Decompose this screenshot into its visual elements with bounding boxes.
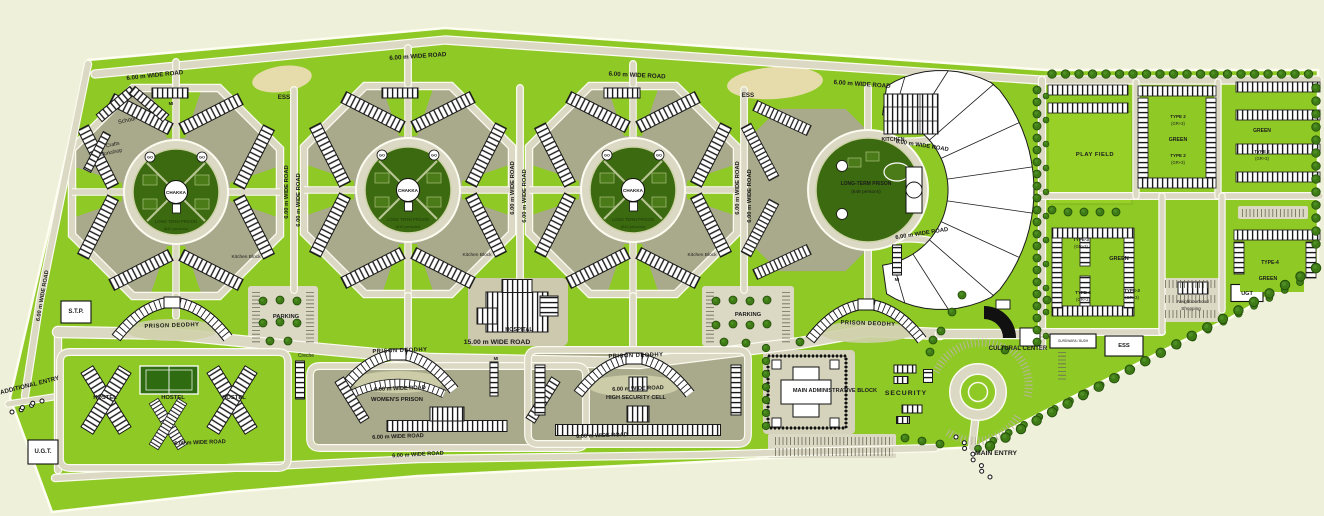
watch-tower <box>837 161 848 172</box>
tree-icon <box>1172 340 1182 350</box>
hs-tower <box>731 365 741 415</box>
tree-icon <box>1218 314 1228 324</box>
mi-building <box>490 362 498 396</box>
type2-label-1b: (GR+3) <box>1171 121 1185 126</box>
tree-icon <box>1312 162 1321 171</box>
tree-icon <box>1312 240 1321 249</box>
tree-icon <box>1001 433 1011 443</box>
tree-icon <box>1250 70 1259 79</box>
admin-block-label: MAIN ADMINISTRATIVE BLOCK <box>793 388 877 394</box>
tree-icon <box>1048 70 1057 79</box>
tree-icon <box>1033 122 1041 130</box>
hs-gate <box>627 406 649 422</box>
tree-icon <box>1080 208 1088 216</box>
tree-icon <box>1033 242 1041 250</box>
housing-green <box>1090 240 1124 306</box>
central-tower <box>906 182 922 198</box>
tree-icon <box>762 357 770 365</box>
tree-icon <box>1312 136 1321 145</box>
additional-entry-gate <box>40 399 44 403</box>
main-entry-gate <box>979 464 983 468</box>
hostel-label-3: HOSTEL <box>222 395 246 401</box>
tree-icon <box>1033 86 1041 94</box>
green-label-1: GREEN <box>1169 137 1188 143</box>
housing-row <box>1234 242 1244 274</box>
housing-row <box>1052 306 1134 316</box>
hospital-wing <box>540 296 558 316</box>
tree-icon <box>1115 70 1124 79</box>
hospital-wing <box>477 308 497 324</box>
tree-icon <box>1033 182 1041 190</box>
road-label-main: 15.00 m WIDE ROAD <box>464 339 531 346</box>
mi-building <box>152 88 188 98</box>
housing-row <box>1080 238 1090 266</box>
tree-icon <box>1033 338 1041 346</box>
tree-icon <box>259 297 267 305</box>
tree-icon <box>1096 208 1104 216</box>
tree-icon <box>1033 110 1041 118</box>
road-label-vertical-3: 6.00 m WIDE ROAD <box>510 161 516 214</box>
cultural-center-label: CULTURAL CENTER <box>989 346 1048 352</box>
tree-icon <box>1129 70 1138 79</box>
tree-icon <box>1312 97 1321 106</box>
type2-label-3a: TYPE 2 <box>1254 149 1270 154</box>
tree-icon <box>1033 206 1041 214</box>
tree-icon <box>1033 98 1041 106</box>
tree-icon <box>1304 70 1313 79</box>
tree-icon <box>1169 70 1178 79</box>
tree-icon <box>1048 206 1056 214</box>
ess-label-3: ESS <box>1118 343 1130 349</box>
play-field <box>1048 112 1132 204</box>
security-building <box>894 365 916 373</box>
type3-label-3b: (GR+3) <box>1125 295 1139 300</box>
tree-icon <box>929 336 937 344</box>
ess-label-2: ESS <box>742 92 754 99</box>
tree-icon <box>1088 70 1097 79</box>
green-label-3: GREEN <box>1109 256 1129 262</box>
site-plan-page: GO GO CHAKKA LONG TERM PRISON (640 perso… <box>0 0 1324 516</box>
tree-icon <box>762 396 770 404</box>
security-building <box>924 370 933 383</box>
tree-icon <box>762 383 770 391</box>
tree-icon <box>1063 399 1073 409</box>
kitchen-building <box>884 94 938 134</box>
tree-icon <box>1033 134 1041 142</box>
main-entry-gate <box>963 446 967 450</box>
type4-label: TYPE-4 <box>1261 260 1279 266</box>
tree-icon <box>1043 165 1049 171</box>
creche-building <box>296 361 305 399</box>
hostel-label-2: HOSTEL <box>161 395 185 401</box>
type2-label-2a: TYPE 2 <box>1170 153 1186 158</box>
main-entry-gate <box>988 475 992 479</box>
housing-row <box>1236 110 1320 120</box>
type3-label-2a: TYPE-3 <box>1075 290 1091 295</box>
admin-corner-tower <box>830 360 839 369</box>
road-label-vertical-5: 6.00 m WIDE ROAD <box>735 161 741 214</box>
housing-row <box>1052 228 1134 238</box>
tree-icon <box>936 440 944 448</box>
stp-label: S.T.P. <box>68 309 84 315</box>
tree-icon <box>1102 70 1111 79</box>
tree-icon <box>1223 70 1232 79</box>
type3-label-1a: TYPE-3 <box>1073 237 1089 242</box>
admin-corner-tower <box>772 360 781 369</box>
mi-building <box>893 245 902 275</box>
tree-icon <box>1312 214 1321 223</box>
tree-icon <box>1291 70 1300 79</box>
admin-corner-tower <box>830 418 839 427</box>
security-label: SECURITY <box>885 390 927 397</box>
tree-icon <box>918 437 926 445</box>
mi-label-3: MI <box>494 356 499 361</box>
tree-icon <box>729 320 737 328</box>
hospital-label: HOSPITAL <box>505 327 533 333</box>
tree-icon <box>1043 296 1051 304</box>
tree-icon <box>1043 333 1049 339</box>
tree-icon <box>284 337 292 345</box>
watch-tower <box>837 209 848 220</box>
road-label-vertical-1: 6.00 m WIDE ROAD <box>284 165 290 218</box>
housing-green <box>1236 120 1320 138</box>
ess-label-1: ESS <box>278 94 290 101</box>
tree-icon <box>1237 70 1246 79</box>
tree-icon <box>1210 70 1219 79</box>
tree-icon <box>1033 326 1041 334</box>
parking-label-1: PARKING <box>273 314 300 320</box>
tree-icon <box>259 319 267 327</box>
tree-icon <box>1043 213 1049 219</box>
security-building <box>894 377 908 384</box>
road-label-vertical-4: 6.00 m WIDE ROAD <box>522 169 528 222</box>
tree-icon <box>1187 331 1197 341</box>
type2-label-3b: (GR+3) <box>1255 156 1269 161</box>
gurdwara-label: GURDWARA / BUDH <box>1058 339 1089 343</box>
security-building <box>897 417 910 424</box>
tree-icon <box>1033 230 1041 238</box>
mi-label-1: MI <box>169 101 174 106</box>
tree-icon <box>1280 280 1290 290</box>
tree-icon <box>1033 302 1041 310</box>
tree-icon <box>1296 272 1306 282</box>
tree-icon <box>746 297 754 305</box>
housing-row <box>1138 178 1216 188</box>
tree-icon <box>1249 297 1259 307</box>
tree-icon <box>1142 70 1151 79</box>
mi-building <box>604 88 640 98</box>
tree-icon <box>1109 373 1119 383</box>
tree-icon <box>937 327 945 335</box>
tree-icon <box>763 296 771 304</box>
womens-prison-label: WOMEN'S PRISON <box>371 397 423 403</box>
prison-campus-site-plan: GO GO CHAKKA LONG TERM PRISON (640 perso… <box>0 0 1324 516</box>
parking-label-2: PARKING <box>735 312 762 318</box>
housing-row <box>1236 82 1320 92</box>
womens-gate <box>430 407 464 421</box>
housing-row <box>1236 172 1320 182</box>
tree-icon <box>1125 365 1135 375</box>
longterm-prison-capacity: (648 persons) <box>851 189 881 195</box>
tree-icon <box>948 308 956 316</box>
kitchen-block-label-3: Kitchen Block <box>687 252 717 258</box>
tree-icon <box>1043 285 1049 291</box>
additional-entry-gate <box>10 410 14 414</box>
type3-label-3a: TYPE-3 <box>1124 288 1140 293</box>
tree-icon <box>1043 93 1049 99</box>
type3-label-1b: (GR+3) <box>1074 244 1088 249</box>
roundabout-island <box>969 383 988 402</box>
tree-icon <box>1043 237 1049 243</box>
green-label-4: GREEN <box>1259 276 1278 282</box>
tree-icon <box>1156 348 1166 358</box>
tree-icon <box>1043 117 1049 123</box>
tree-icon <box>763 320 771 328</box>
housing-row <box>1234 230 1320 240</box>
tree-icon <box>1312 175 1321 184</box>
housing-row <box>1236 144 1320 154</box>
housing-row <box>1048 85 1128 95</box>
tree-icon <box>1265 289 1275 299</box>
tree-icon <box>1043 261 1049 267</box>
neighbourhood-shopping-label-1: Neighbourhood <box>1177 299 1209 304</box>
tree-icon <box>1043 309 1049 315</box>
hospital-wing <box>502 280 532 293</box>
tree-icon <box>1033 278 1041 286</box>
kitchen-block-label-1: Kitchen Block <box>231 254 261 260</box>
tree-icon <box>1033 146 1041 154</box>
tree-icon <box>1312 110 1321 119</box>
housing-row <box>1048 103 1128 113</box>
admin-corner-tower <box>772 418 781 427</box>
creche-label: Creche <box>298 353 314 359</box>
tree-icon <box>1156 70 1165 79</box>
tree-icon <box>742 339 750 347</box>
main-entry-label: MAIN ENTRY <box>975 450 1018 457</box>
type3-label-2b: (GR+3) <box>1076 297 1090 302</box>
cultural-center-annex <box>996 300 1010 309</box>
additional-entry-gate <box>20 406 24 410</box>
road-label-vertical-2: 6.00 m WIDE ROAD <box>296 173 302 226</box>
tree-icon <box>729 296 737 304</box>
tree-icon <box>1061 70 1070 79</box>
housing-row <box>1138 86 1216 96</box>
tree-icon <box>1043 189 1049 195</box>
court <box>866 152 879 161</box>
tree-icon <box>901 434 909 442</box>
neighbourhood-shopping-label-2: Shopping <box>1181 306 1201 311</box>
longterm-prison-label: LONG-TERM PRISON <box>841 181 892 187</box>
additional-entry-gate <box>31 401 35 405</box>
tree-icon <box>1277 70 1286 79</box>
kitchen-label: KITCHEN <box>881 137 904 143</box>
tree-icon <box>1033 254 1041 262</box>
tree-icon <box>276 296 284 304</box>
tree-icon <box>1064 208 1072 216</box>
tree-icon <box>1033 314 1041 322</box>
tree-icon <box>762 422 770 430</box>
kitchen-block-label-2: Kitchen Block <box>462 252 492 258</box>
tree-icon <box>1312 227 1321 236</box>
chakka-cluster-2 <box>304 86 512 294</box>
main-entry-gate <box>954 435 958 439</box>
tree-icon <box>796 338 804 346</box>
tree-icon <box>1312 188 1321 197</box>
housing-row <box>1052 238 1062 308</box>
tree-icon <box>1312 123 1321 132</box>
tree-icon <box>1043 141 1049 147</box>
main-entry-gate <box>962 441 966 445</box>
tree-icon <box>1203 323 1213 333</box>
tree-icon <box>1016 424 1026 434</box>
tree-icon <box>1264 70 1273 79</box>
tree-icon <box>1312 201 1321 210</box>
tree-icon <box>1094 382 1104 392</box>
tree-icon <box>958 291 966 299</box>
tree-icon <box>1033 158 1041 166</box>
tree-icon <box>762 370 770 378</box>
tree-icon <box>1078 390 1088 400</box>
main-entry-gate <box>980 469 984 473</box>
green-label-2: GREEN <box>1253 128 1271 134</box>
tree-icon <box>266 337 274 345</box>
womens-barrack <box>387 421 507 432</box>
tree-icon <box>1047 407 1057 417</box>
tree-icon <box>762 344 770 352</box>
tree-icon <box>1312 149 1321 158</box>
tree-icon <box>1032 416 1042 426</box>
play-field-label: PLAY FIELD <box>1076 152 1114 158</box>
hostel-label-1: HOSTEL <box>93 395 117 401</box>
housing-row <box>1138 98 1148 178</box>
road-label-vertical-6: 6.00 m WIDE ROAD <box>747 169 753 222</box>
tree-icon <box>1033 290 1041 298</box>
tree-icon <box>712 321 720 329</box>
tree-icon <box>1075 70 1084 79</box>
tree-icon <box>1312 84 1321 93</box>
court <box>848 158 861 167</box>
tree-icon <box>746 321 754 329</box>
tree-icon <box>926 348 934 356</box>
tree-icon <box>1033 218 1041 226</box>
tree-icon <box>1311 263 1321 273</box>
mi-building <box>382 88 418 98</box>
security-building <box>902 405 922 413</box>
tree-icon <box>1183 70 1192 79</box>
tree-icon <box>1112 208 1120 216</box>
tree-icon <box>762 409 770 417</box>
hs-tower <box>535 365 545 415</box>
tree-icon <box>1196 70 1205 79</box>
tree-icon <box>1033 266 1041 274</box>
tree-icon <box>712 297 720 305</box>
high-security-cell-label: HIGH SECURITY CELL <box>606 395 666 401</box>
mi-label-2: MI <box>895 277 900 282</box>
tree-icon <box>1140 356 1150 366</box>
main-entry-gate <box>971 458 975 462</box>
ugt-label-2: UGT <box>1241 291 1253 297</box>
tree-icon <box>1234 306 1244 316</box>
type2-label-2b: (GR+3) <box>1171 160 1185 165</box>
tree-icon <box>1033 194 1041 202</box>
tree-icon <box>293 319 301 327</box>
chakka-cluster-3 <box>529 86 737 294</box>
ugt-label-1: U.G.T. <box>34 449 51 455</box>
type2-label-1a: TYPE 2 <box>1170 114 1186 119</box>
housing-row <box>1206 98 1216 178</box>
tree-icon <box>1033 170 1041 178</box>
tree-icon <box>293 297 301 305</box>
tree-icon <box>720 338 728 346</box>
